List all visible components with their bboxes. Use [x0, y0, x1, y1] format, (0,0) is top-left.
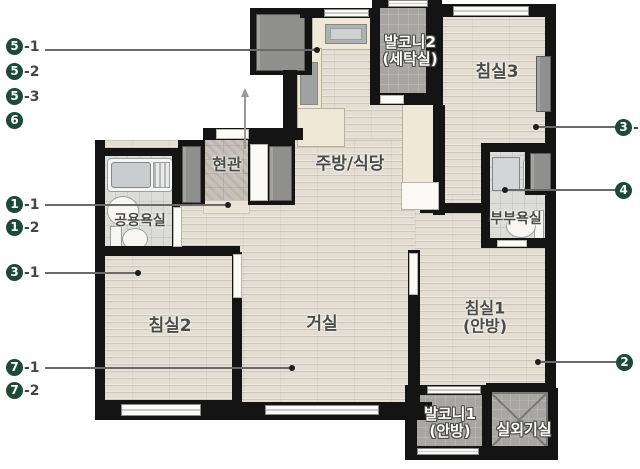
- kitchen-window: [324, 9, 369, 17]
- balcony2-window: [388, 0, 428, 7]
- callout-badge: 5: [6, 88, 23, 105]
- refrigerator: [256, 14, 305, 71]
- callout-badge: 1: [6, 196, 23, 213]
- callout-badge: 5: [6, 38, 23, 55]
- leader-dot-4: [502, 187, 508, 193]
- leader-dot-3-1: [135, 270, 141, 276]
- leader-line-3-1: [45, 272, 138, 274]
- leader-dot-3-2: [533, 124, 539, 130]
- callout-badge: 5: [6, 63, 23, 80]
- wall: [481, 150, 490, 245]
- bedroom3-window: [453, 6, 529, 16]
- callout-suffix: -3: [24, 89, 40, 105]
- wall: [95, 140, 105, 420]
- callout-badge: 4: [615, 182, 632, 199]
- callout-7-2: 7 -2: [6, 382, 40, 399]
- callout-badge: 7: [6, 382, 23, 399]
- callout-7-1: 7 -1: [6, 359, 40, 376]
- callout-3-2: 3 -2: [615, 119, 640, 136]
- callout-suffix: -1: [24, 360, 40, 376]
- callout-5-1: 5 -1: [6, 38, 40, 55]
- callout-suffix: -2: [24, 220, 40, 236]
- callout-badge: 6: [6, 112, 23, 129]
- callout-suffix: -1: [24, 197, 40, 213]
- front-door: [250, 144, 268, 201]
- leader-line-7-1: [45, 367, 292, 369]
- room-label-balcony1: 발코니1 (안방): [424, 406, 476, 441]
- callout-suffix: -1: [24, 39, 40, 55]
- balcony2-door-opening: [380, 95, 404, 104]
- callout-2: 2: [616, 354, 634, 371]
- wardrobe: [530, 153, 551, 190]
- callout-badge: 2: [616, 354, 633, 371]
- leader-dot-5-1: [314, 47, 320, 53]
- callout-1-2: 1 -2: [6, 219, 40, 236]
- leader-dot-2: [535, 359, 541, 365]
- kitchen-sink-basin: [330, 28, 362, 40]
- master-bath-shower: [492, 157, 520, 191]
- callout-badge: 1: [6, 219, 23, 236]
- floor-plan-figure: 발코니2 (세탁실) 침실3 현관 주방/식당 공용욕실 부부욕실 침실2 거실…: [0, 0, 640, 469]
- room-label-entrance: 현관: [212, 156, 241, 174]
- callout-badge: 7: [6, 359, 23, 376]
- wall: [486, 383, 556, 392]
- room-label-bedroom1: 침실1 (안방): [463, 300, 507, 337]
- room-label-bedroom3: 침실3: [475, 63, 518, 83]
- shoe-closet: [269, 146, 292, 201]
- entrance-outside-area: [200, 70, 285, 130]
- leader-line-3-2: [539, 126, 617, 128]
- callout-badge: 3: [615, 119, 632, 136]
- callout-suffix: -2: [633, 120, 640, 136]
- wall: [370, 8, 380, 105]
- common-bath-door: [173, 207, 182, 247]
- living-room-window: [265, 405, 379, 415]
- bedroom3-wardrobe: [536, 56, 551, 112]
- callout-6: 6: [6, 112, 24, 129]
- room-label-kitchen: 주방/식당: [316, 155, 385, 175]
- balcony1-window: [417, 448, 479, 455]
- callout-badge: 3: [6, 264, 23, 281]
- leader-line-5-1: [45, 49, 317, 51]
- callout-1-1: 1 -1: [6, 196, 40, 213]
- wall: [95, 148, 180, 156]
- room-label-living: 거실: [306, 315, 337, 335]
- room-label-outdoor-unit: 실외기실: [496, 421, 551, 438]
- callout-suffix: -1: [24, 265, 40, 281]
- callout-3-1: 3 -1: [6, 264, 40, 281]
- leader-line-1-1: [45, 204, 228, 206]
- room-label-common-bath: 공용욕실: [114, 213, 166, 229]
- balcony1-sliding-door: [427, 386, 481, 394]
- bedroom2-window: [121, 404, 201, 416]
- bedroom1-door: [409, 253, 418, 295]
- room-label-master-bath: 부부욕실: [490, 211, 542, 227]
- callout-4: 4: [615, 182, 633, 199]
- leader-dot-1-1: [225, 202, 231, 208]
- callout-suffix: -2: [24, 383, 40, 399]
- room-label-balcony2: 발코니2 (세탁실): [382, 34, 437, 69]
- entrance-arrow-head-icon: [241, 88, 249, 97]
- leader-dot-7-1: [289, 365, 295, 371]
- entrance-closet: [182, 146, 201, 203]
- kitchen-counter-foot: [297, 108, 345, 147]
- master-bath-door: [497, 240, 527, 247]
- callout-5-3: 5 -3: [6, 88, 40, 105]
- bathtub-ledge: [153, 162, 170, 188]
- entrance-arrow-icon: [244, 97, 246, 149]
- leader-line-2: [541, 361, 618, 363]
- bedroom2-door: [233, 254, 242, 298]
- bedroom3-door: [401, 182, 439, 210]
- wall: [95, 246, 240, 256]
- room-label-bedroom2: 침실2: [148, 317, 191, 337]
- leader-line-4: [508, 189, 617, 191]
- callout-5-2: 5 -2: [6, 63, 40, 80]
- callout-suffix: -2: [24, 64, 40, 80]
- bathtub-basin: [111, 162, 151, 188]
